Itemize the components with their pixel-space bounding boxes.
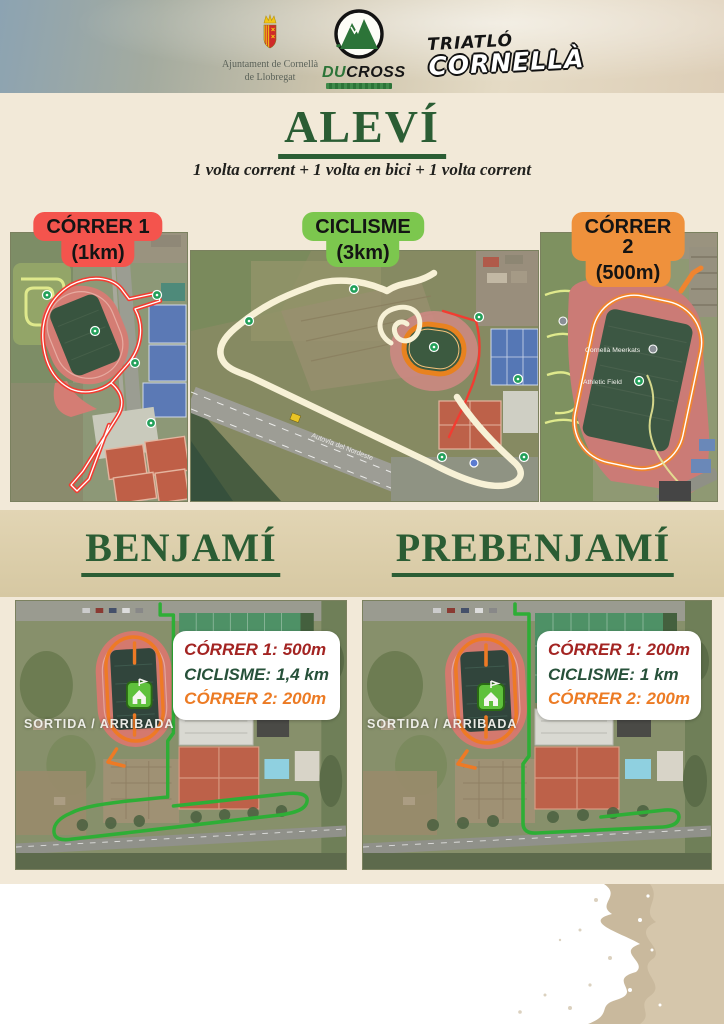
tag-correr-1-name: CÓRRER 1 [33, 212, 162, 241]
tag-correr-2: CÓRRER 2 (500m) [572, 212, 685, 287]
benjami-title: BENJAMÍ [81, 524, 280, 577]
tag-correr-1: CÓRRER 1 (1km) [33, 212, 162, 267]
prebenjami-stat-ciclisme: CICLISME:1 km [548, 663, 690, 688]
prebenjami-stat-correr2: CÓRRER 2:200m [548, 687, 690, 712]
category-band: BENJAMÍ PREBENJAMÍ [0, 510, 724, 597]
prebenjami-stat-correr1: CÓRRER 1:200m [548, 638, 690, 663]
benjami-map: SORTIDA / ARRIBADA CÓRRER 1:500m CICLISM… [15, 600, 347, 870]
ducross-wordmark: DUCROSS [322, 65, 396, 81]
benjami-stat-correr2: CÓRRER 2:200m [184, 687, 329, 712]
header-sky: Ajuntament de Cornellà de Llobregat DUCR… [0, 0, 724, 93]
meerkats-label: Cornellà Meerkats [585, 347, 641, 354]
triatlo-line2: CORNELLÀ [428, 46, 549, 81]
tag-ciclisme: CICLISME (3km) [302, 212, 424, 267]
triathlon-poster: Ajuntament de Cornellà de Llobregat DUCR… [0, 0, 724, 1024]
tag-correr-2-name: CÓRRER 2 [572, 212, 685, 261]
ducross-mountain-icon [330, 8, 388, 62]
benjami-stats-box: CÓRRER 1:500m CICLISME:1,4 km CÓRRER 2:2… [173, 631, 340, 720]
sand-texture [0, 884, 724, 1024]
sponsors-footer: ENINTER ASCENSORES Tall a Tall CARNISSER… [0, 884, 724, 1024]
prebenjami-title: PREBENJAMÍ [392, 524, 674, 577]
correr1-map [10, 232, 188, 502]
triatlo-cornella-logo: TRIATLÓ CORNELLÀ [427, 29, 549, 81]
finish-house-icon [478, 681, 504, 710]
prebenjami-sortida-label: SORTIDA / ARRIBADA [367, 717, 517, 731]
benjami-stat-correr1: CÓRRER 1:500m [184, 638, 329, 663]
benjami-sortida-label: SORTIDA / ARRIBADA [24, 717, 174, 731]
tag-correr-2-distance: (500m) [586, 260, 670, 287]
tag-correr-1-distance: (1km) [61, 240, 134, 267]
tag-ciclisme-distance: (3km) [326, 240, 399, 267]
tag-ciclisme-name: CICLISME [302, 212, 424, 241]
alevi-title: ALEVÍ [278, 100, 446, 159]
athletic-field-label: Athletic Field [583, 379, 622, 386]
ducross-logo: DUCROSS [322, 8, 396, 89]
ajuntament-crest-icon [255, 14, 285, 52]
benjami-stat-ciclisme: CICLISME:1,4 km [184, 663, 329, 688]
ajuntament-name: Ajuntament de Cornellà de Llobregat [215, 59, 325, 84]
prebenjami-stats-box: CÓRRER 1:200m CICLISME:1 km CÓRRER 2:200… [537, 631, 701, 720]
ajuntament-logo: Ajuntament de Cornellà de Llobregat [215, 14, 325, 84]
prebenjami-map: SORTIDA / ARRIBADA CÓRRER 1:200m CICLISM… [362, 600, 712, 870]
ciclisme-map: Autovía del Nordeste [190, 250, 539, 502]
ducross-banner-bar [326, 83, 392, 89]
finish-house-icon [127, 679, 152, 708]
alevi-subtitle: 1 volta corrent + 1 volta en bici + 1 vo… [193, 160, 531, 180]
